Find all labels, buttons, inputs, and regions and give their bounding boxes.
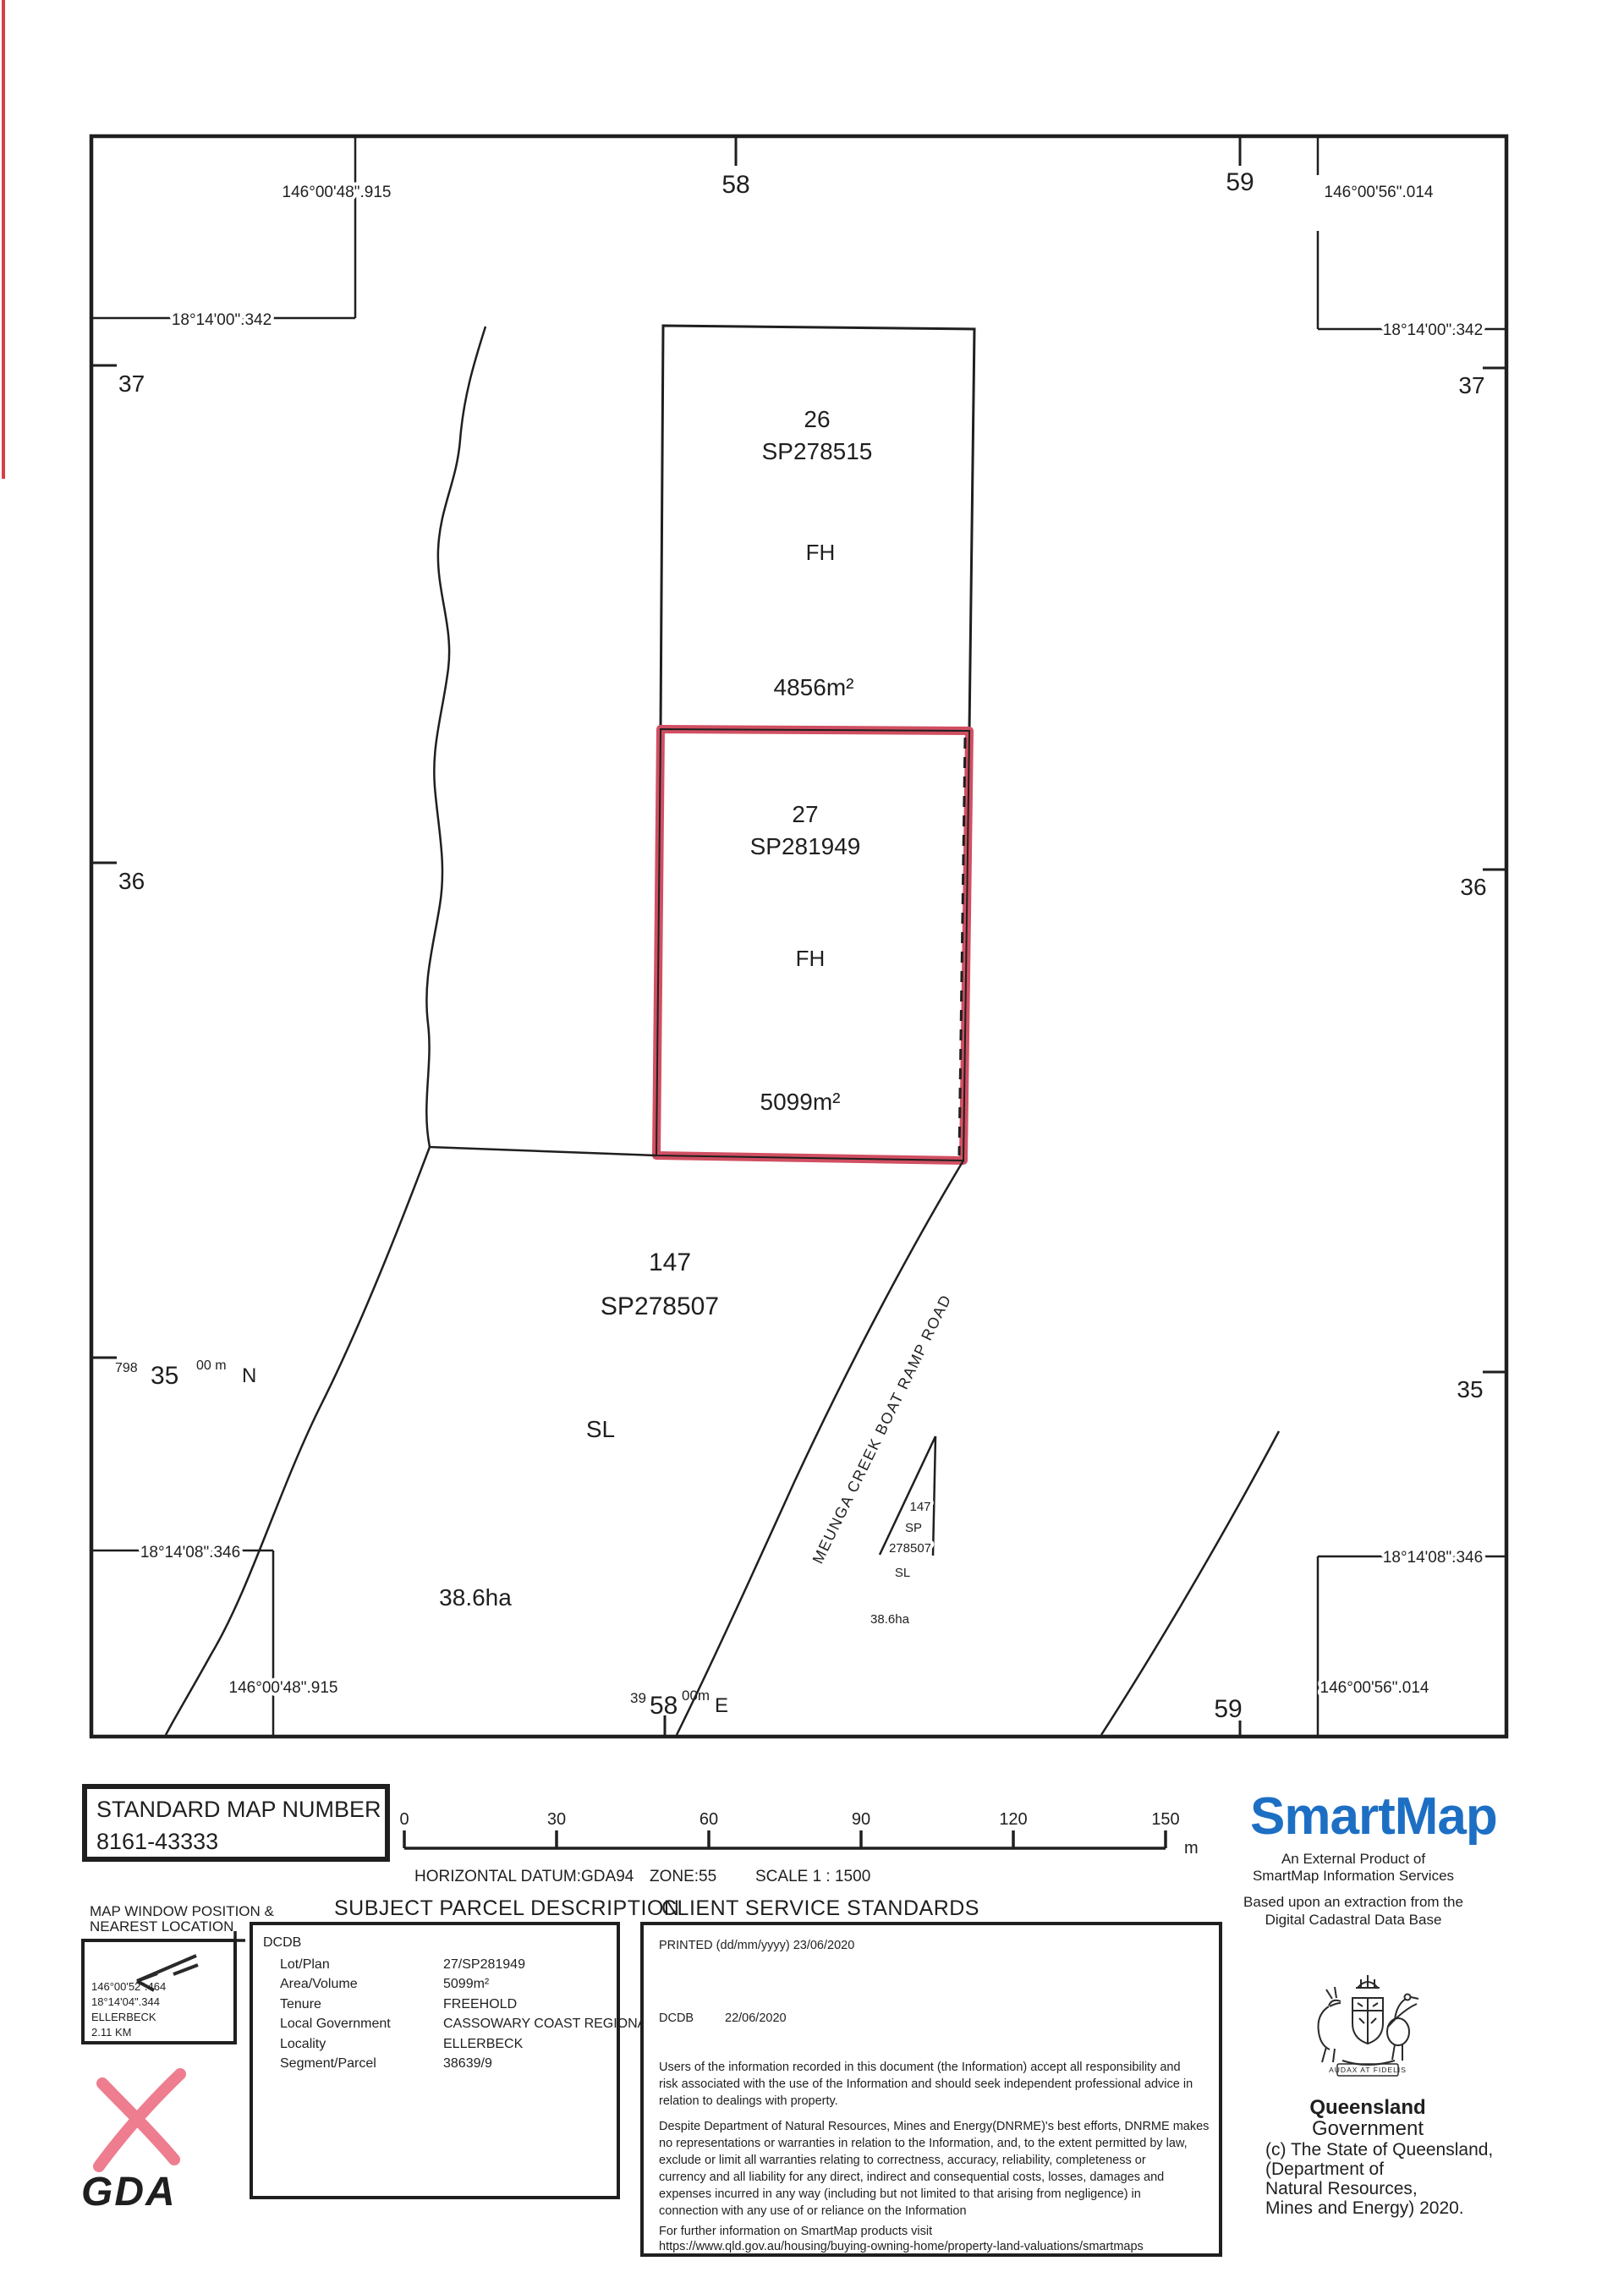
- row-label: Locality: [280, 2037, 326, 2052]
- map-window-locality: ELLERBECK: [91, 2011, 156, 2023]
- map-frame: [91, 136, 1506, 1737]
- row-value: 27/SP281949: [443, 1957, 525, 1973]
- northing-main: 35: [151, 1362, 178, 1390]
- disclaimer-para2-line5: expenses incurred in any way (including …: [659, 2186, 1141, 2203]
- grid-label-left-37: 37: [118, 370, 145, 397]
- bracket-bottom-right: [1318, 1556, 1506, 1735]
- grid-label-bottom-59: 59: [1214, 1695, 1242, 1723]
- road-edge-east: [1101, 1431, 1279, 1735]
- client-service-box: PRINTED (dd/mm/yyyy) 23/06/2020 DCDB 22/…: [640, 1922, 1222, 2257]
- scalebar-tick-0: 0: [399, 1810, 409, 1829]
- map-window-title-line2: NEAREST LOCATION: [90, 1918, 233, 1935]
- creek-line: [426, 327, 486, 1147]
- row-label: Segment/Parcel: [280, 2056, 376, 2072]
- coord-top-left-lon: 146°00'48".915: [283, 184, 392, 201]
- coord-bottom-left-lon: 146°00'48".915: [229, 1679, 338, 1697]
- row-label: Area/Volume: [280, 1977, 358, 1992]
- disclaimer-para2-line2: no representations or warranties in rela…: [659, 2135, 1188, 2152]
- triangle-plan-1: SP: [905, 1521, 922, 1535]
- standard-map-number-value: 8161-43333: [96, 1829, 218, 1855]
- scalebar-scale: SCALE 1 : 1500: [755, 1868, 870, 1885]
- smartmap-tagline-1: An External Product of: [1222, 1851, 1484, 1868]
- parcel-147-lot: 147: [649, 1249, 691, 1276]
- bracket-top-right: [1318, 138, 1506, 329]
- scan-artifact-line: [2, 0, 5, 479]
- scalebar-tick-120: 120: [999, 1810, 1027, 1829]
- parcel-147-tenure: SL: [586, 1416, 615, 1442]
- row-label: Local Government: [280, 2017, 391, 2032]
- coord-bottom-right-lon: 146°00'56".014: [1320, 1679, 1429, 1697]
- coord-top-right-lon: 146°00'56".014: [1325, 184, 1434, 201]
- parcel-26-area: 4856m²: [774, 674, 854, 700]
- row-value: 38639/9: [443, 2056, 492, 2072]
- map-window-lat: 18°14'04".344: [91, 1995, 160, 2008]
- parcel-26-boundary: [661, 326, 974, 731]
- row-value: ELLERBECK: [443, 2037, 523, 2052]
- qld-gov: Government: [1279, 2117, 1457, 2141]
- smartmap-logo: SmartMap: [1250, 1786, 1497, 1847]
- smartmap-url: https://www.qld.gov.au/housing/buying-ow…: [659, 2238, 1144, 2255]
- qld-name: Queensland: [1279, 2096, 1457, 2120]
- parcel-26-tenure: FH: [806, 540, 836, 565]
- road-edge-west: [677, 1161, 963, 1735]
- smartmap-tagline-2: SmartMap Information Services: [1222, 1868, 1484, 1885]
- grid-label-right-37: 37: [1458, 372, 1484, 398]
- parcel-27-tenure: FH: [796, 946, 826, 971]
- scalebar-tick-150: 150: [1151, 1810, 1179, 1829]
- easting-dir: E: [715, 1694, 728, 1717]
- printed-date: PRINTED (dd/mm/yyyy) 23/06/2020: [659, 1937, 854, 1954]
- smartmap-tagline-3: Based upon an extraction from the: [1222, 1894, 1484, 1911]
- coord-bottom-left-lat: 18°14'08".346: [140, 1544, 240, 1561]
- row-label: Tenure: [280, 1997, 321, 2012]
- subject-parcel-heading: SUBJECT PARCEL DESCRIPTION: [334, 1896, 679, 1921]
- scalebar-tick-90: 90: [852, 1810, 870, 1829]
- triangle-area: 38.6ha: [870, 1612, 910, 1627]
- scalebar-zone: ZONE:55: [650, 1868, 716, 1885]
- smartmap-tagline-4: Digital Cadastral Data Base: [1222, 1912, 1484, 1929]
- scalebar-unit: m: [1184, 1839, 1199, 1858]
- grid-label-left-36: 36: [118, 868, 145, 894]
- coord-top-left-lat: 18°14'00".342: [172, 311, 272, 329]
- parcel-27-plan: SP281949: [750, 833, 861, 859]
- row-value: CASSOWARY COAST REGIONAL: [443, 2017, 654, 2032]
- grid-label-top-59: 59: [1226, 168, 1254, 196]
- qld-copyright-line3: Natural Resources,: [1265, 2179, 1418, 2199]
- further-info-text: For further information on SmartMap prod…: [659, 2223, 932, 2240]
- scalebar-tick-30: 30: [547, 1810, 566, 1829]
- gda-logo-icon: [99, 2074, 180, 2166]
- triangle-parcel: [880, 1436, 935, 1556]
- parcel-147-area: 38.6ha: [439, 1584, 512, 1611]
- grid-label-right-35: 35: [1457, 1376, 1483, 1402]
- northing-dir: N: [242, 1364, 256, 1387]
- coord-top-right-lat: 18°14'00".342: [1383, 321, 1483, 339]
- qld-copyright-line2: (Department of: [1265, 2160, 1384, 2180]
- dcdb-label: DCDB: [659, 2010, 694, 2027]
- row-value: 5099m²: [443, 1977, 489, 1992]
- boundary-line-147: [166, 1147, 430, 1735]
- row-label: Lot/Plan: [280, 1957, 330, 1973]
- client-service-heading: CLIENT SERVICE STANDARDS: [661, 1896, 979, 1921]
- parcel-26-lot: 26: [804, 406, 830, 432]
- easting-prefix: 39: [630, 1690, 646, 1706]
- easting-main: 58: [650, 1692, 678, 1720]
- parcel-27-area: 5099m²: [760, 1089, 841, 1115]
- disclaimer-para2-line3: exclude or limit all warranties relating…: [659, 2152, 1146, 2169]
- coord-bottom-right-lat: 18°14'08".346: [1383, 1549, 1483, 1567]
- subject-parcel-source: DCDB: [263, 1935, 301, 1951]
- qld-motto: AUDAX AT FIDELIS: [1329, 2066, 1407, 2074]
- bracket-top-left: [91, 138, 355, 318]
- northing-sup: 00 m: [196, 1358, 227, 1373]
- disclaimer-para1-line1: Users of the information recorded in thi…: [659, 2059, 1181, 2076]
- disclaimer-para2-line4: currency and all liability for any direc…: [659, 2169, 1164, 2186]
- subject-parcel-table: DCDB Lot/Plan 27/SP281949 Area/Volume 50…: [250, 1922, 620, 2199]
- scalebar-datum: HORIZONTAL DATUM:GDA94: [414, 1868, 634, 1885]
- disclaimer-para1-line3: relation to dealings with property.: [659, 2093, 838, 2110]
- triangle-plan-2: 278507: [889, 1541, 931, 1556]
- standard-map-number-title: STANDARD MAP NUMBER: [96, 1797, 381, 1823]
- grid-label-top-58: 58: [721, 171, 749, 199]
- gda-wordmark: GDA: [81, 2169, 177, 2215]
- grid-label-right-36: 36: [1460, 874, 1486, 900]
- qld-copyright-line1: (c) The State of Queensland,: [1265, 2140, 1493, 2160]
- parcel-147-plan: SP278507: [601, 1292, 719, 1320]
- northing-prefix: 798: [115, 1361, 138, 1375]
- scalebar-line: [404, 1830, 1166, 1848]
- dcdb-date: 22/06/2020: [725, 2010, 787, 2027]
- map-window-title-line1: MAP WINDOW POSITION &: [90, 1903, 274, 1920]
- map-window-distance: 2.11 KM: [91, 2026, 131, 2039]
- parcel-26-plan: SP278515: [762, 438, 873, 464]
- qld-coat-of-arms-icon: [1319, 1975, 1419, 2076]
- parcel-27-lot: 27: [792, 801, 818, 827]
- qld-copyright-line4: Mines and Energy) 2020.: [1265, 2198, 1464, 2219]
- disclaimer-para2-line6: connection with any use of or reliance o…: [659, 2203, 967, 2220]
- disclaimer-para1-line2: risk associated with the use of the Info…: [659, 2076, 1193, 2093]
- triangle-lot: 147: [909, 1500, 930, 1514]
- map-window-lon: 146°00'52".464: [91, 1980, 166, 1993]
- boundary-27-south: [430, 1147, 656, 1155]
- disclaimer-para2-line1: Despite Department of Natural Resources,…: [659, 2118, 1209, 2135]
- triangle-tenure: SL: [895, 1566, 910, 1580]
- scalebar-tick-60: 60: [700, 1810, 718, 1829]
- row-value: FREEHOLD: [443, 1997, 517, 2012]
